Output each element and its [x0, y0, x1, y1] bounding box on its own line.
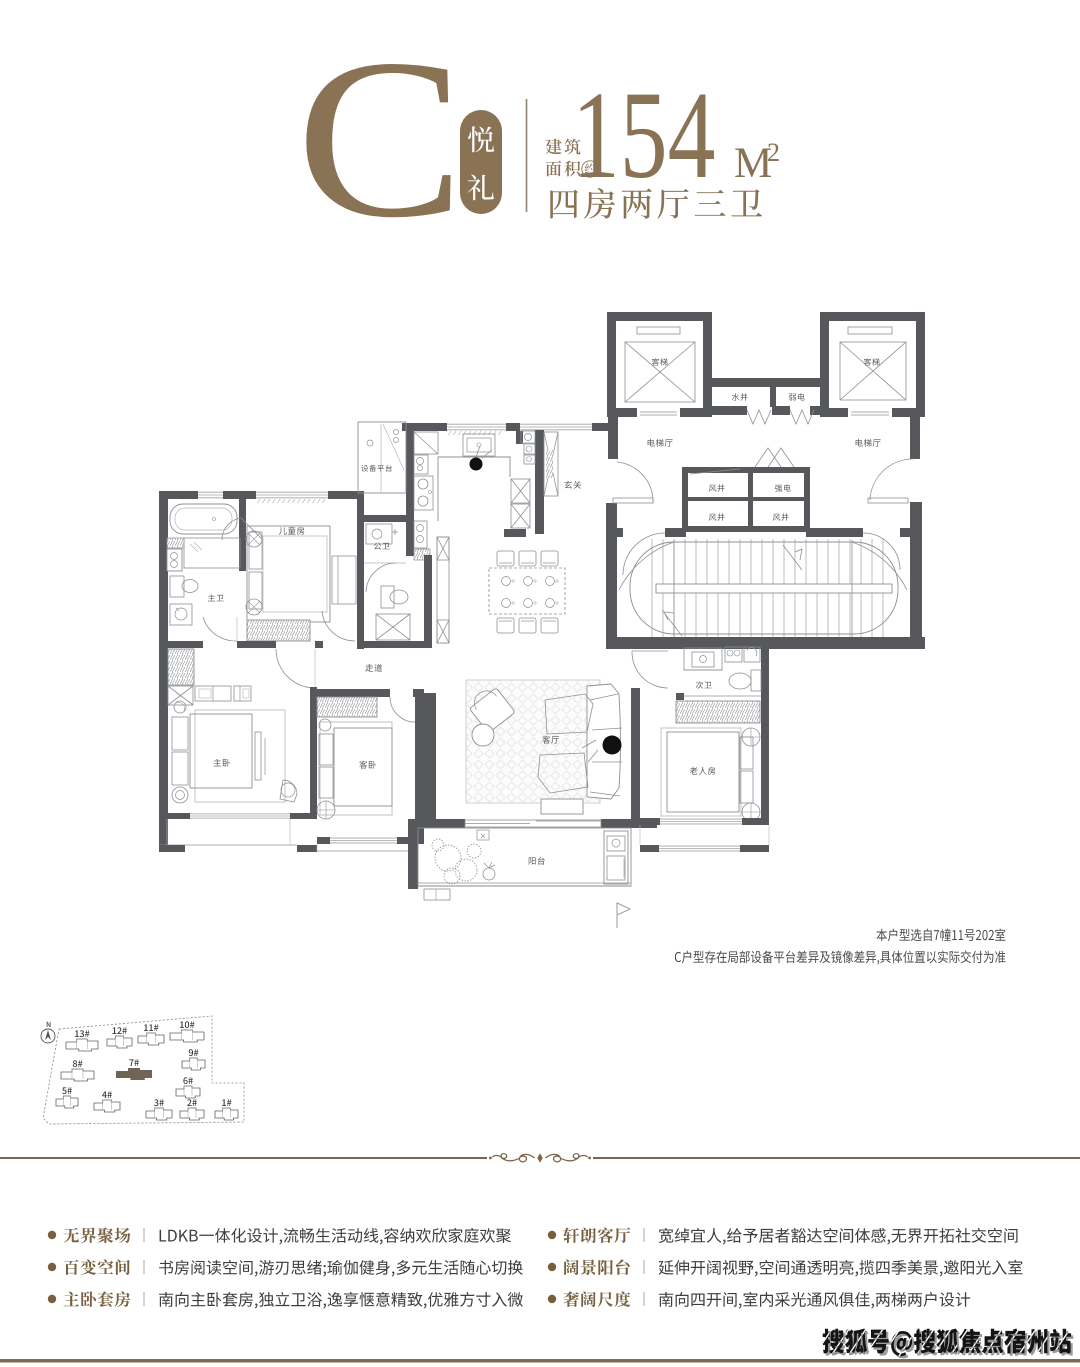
svg-text:154: 154: [572, 67, 715, 205]
svg-text:C: C: [296, 13, 465, 265]
svg-text:2: 2: [767, 138, 780, 167]
